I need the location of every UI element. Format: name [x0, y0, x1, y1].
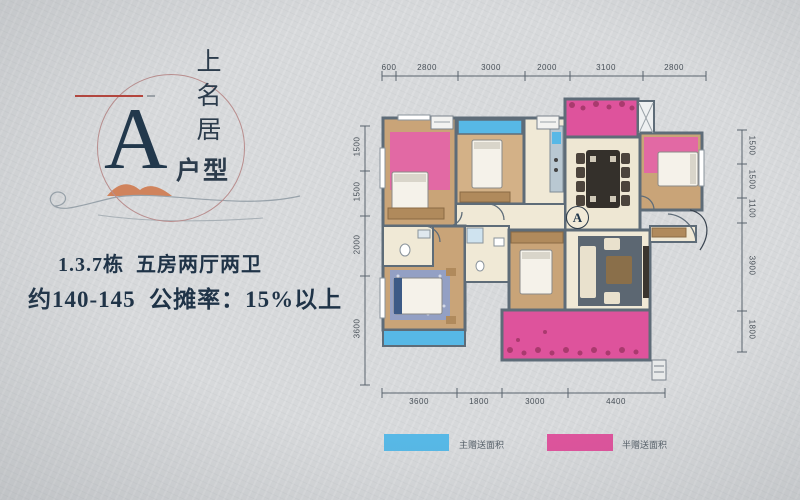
dim-left-3: 3600 — [353, 309, 362, 349]
brand-name-vertical: 上 名 居 — [194, 46, 224, 148]
plan-marker-a: A — [566, 206, 589, 229]
brand-char: 居 — [194, 114, 224, 148]
dim-left-0: 1500 — [353, 127, 362, 167]
dim-top-0: 600 — [369, 63, 409, 72]
dim-bottom-0: 3600 — [399, 397, 439, 406]
brand-char: 上 — [194, 46, 224, 80]
legend-swatch-main-gift-area — [384, 434, 449, 451]
headline-buildings: 1.3.7栋 五房两厅两卫 — [58, 248, 262, 277]
dim-right-2: 1100 — [748, 189, 757, 229]
unit-type-label: 户型 — [176, 151, 286, 187]
dim-left-1: 1500 — [353, 172, 362, 212]
dim-top-4: 3100 — [586, 63, 626, 72]
balcony-master-blue — [383, 330, 465, 346]
headline-area: 约140-145 公摊率：15%以上 — [28, 280, 342, 314]
dim-top-2: 3000 — [471, 63, 511, 72]
logo-letter-a: A — [104, 96, 184, 196]
dim-top-5: 2800 — [654, 63, 694, 72]
room-top-flower-balcony — [565, 99, 638, 137]
dim-top-3: 2000 — [527, 63, 567, 72]
balcony-bed2-blue — [458, 120, 522, 134]
dim-bottom-1: 1800 — [459, 397, 499, 406]
dim-right-4: 1800 — [748, 310, 757, 350]
legend-label-main-gift-area: 主赠送面积 — [459, 438, 504, 451]
dim-bottom-3: 4400 — [596, 397, 636, 406]
dim-right-3: 3900 — [748, 246, 757, 286]
dim-left-2: 2000 — [353, 225, 362, 265]
dim-top-1: 2800 — [407, 63, 447, 72]
brand-char: 名 — [194, 80, 224, 114]
legend-label-semi-gift-area: 半赠送面积 — [622, 438, 667, 451]
flyer-page: A 上 名 居 户型 1.3.7栋 五房两厅两卫 约140-145 公摊率：15… — [0, 0, 800, 500]
legend-swatch-semi-gift-area — [547, 434, 613, 451]
dim-bottom-2: 3000 — [515, 397, 555, 406]
